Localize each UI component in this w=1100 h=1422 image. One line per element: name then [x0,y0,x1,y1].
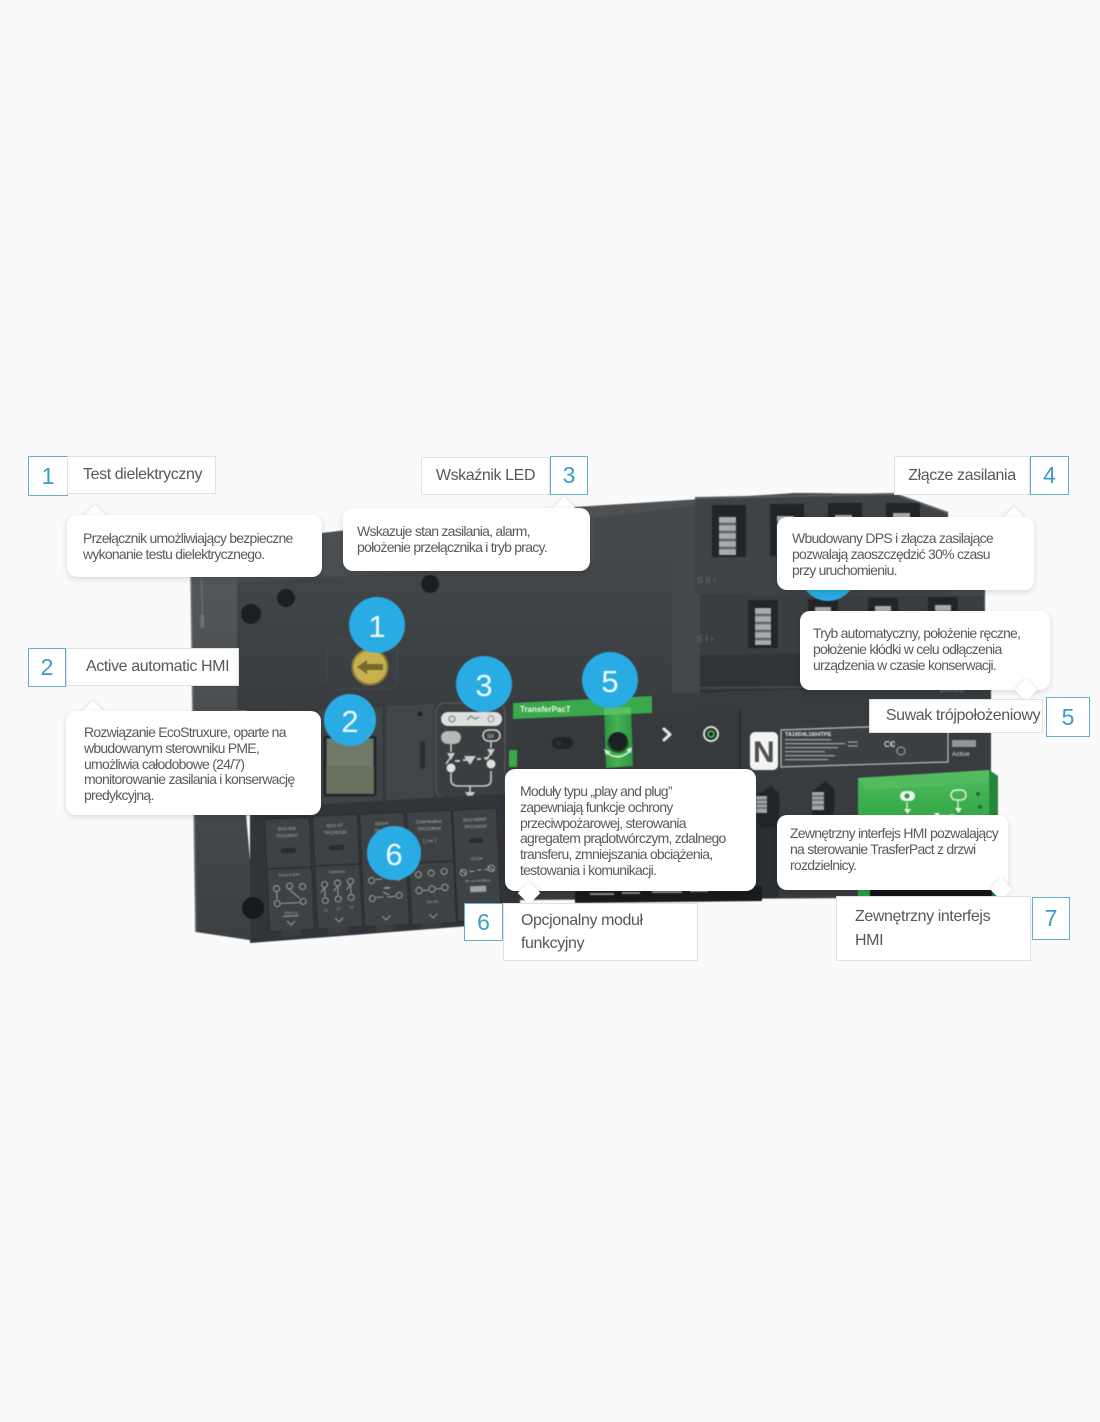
svg-text:Db+/dc: Db+/dc [426,900,438,905]
svg-text:V2: V2 [337,907,341,911]
svg-text:5: 5 [601,664,618,699]
svg-text:TPC0SO33: TPC0SO33 [324,830,347,836]
svg-text:TPCOD017: TPCOD017 [276,833,299,839]
svg-text:V3: V3 [349,905,353,909]
svg-text:Volt/Sens: Volt/Sens [329,870,345,875]
svg-text:S II ›: S II › [697,575,716,585]
svg-text:TA16D4L1604TPE: TA16D4L1604TPE [785,732,832,738]
svg-text:EKO-DE/KP: EKO-DE/KP [463,817,487,823]
svg-text:SII: SII [487,734,494,740]
svg-text:TransferPacT: TransferPacT [520,705,571,714]
svg-text:TPCOD016: TPCOD016 [464,824,487,830]
svg-text:EKO-VT: EKO-VT [327,823,344,829]
svg-text:3: 3 [475,668,492,703]
svg-text:V1: V1 [324,908,328,912]
svg-text:OC3M: OC3M [471,856,483,862]
svg-text:S I ›: S I › [697,634,714,644]
svg-text:6: 6 [385,837,402,872]
svg-text:1: 1 [368,609,385,644]
svg-text:EKO-G/A: EKO-G/A [278,826,296,832]
svg-text:Active: Active [952,751,970,758]
svg-text:2: 2 [341,704,358,739]
svg-text:N: N [753,736,775,769]
svg-text:CЄ: CЄ [884,740,896,749]
svg-text:EKO-F: EKO-F [375,821,389,827]
svg-text:Alarm g: Alarm g [284,911,297,916]
